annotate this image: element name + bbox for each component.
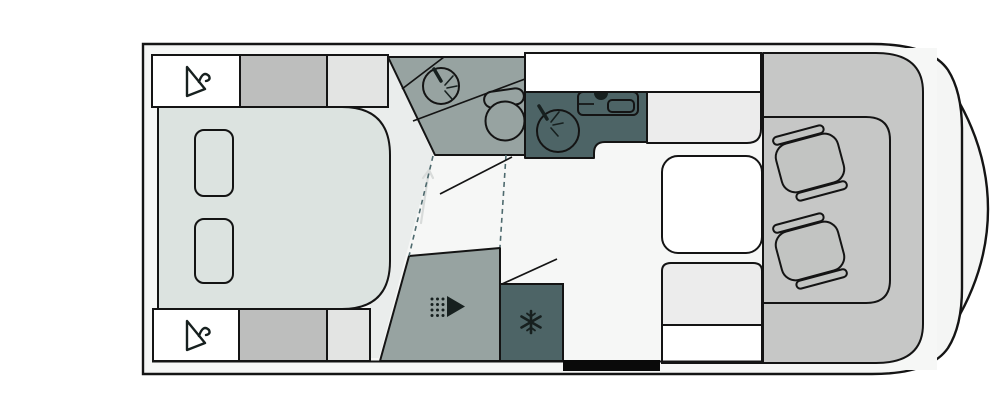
overhead-cabinet-bottom-light <box>327 309 370 361</box>
cab-floor <box>763 53 923 363</box>
floorplan-stage <box>0 0 1000 418</box>
kitchen-bench <box>647 92 761 143</box>
washbasin-with-tap <box>423 68 459 104</box>
overhead-unit <box>525 53 761 92</box>
pillow <box>195 130 233 196</box>
bed <box>158 107 390 309</box>
overhead-cabinet-top-light <box>327 55 388 107</box>
bedroom <box>152 55 390 361</box>
wardrobe-top <box>152 55 240 107</box>
entry-door-marker <box>563 360 660 371</box>
toilet <box>483 87 525 140</box>
cab <box>763 53 923 363</box>
floorplan-svg <box>0 0 1000 418</box>
overhead-cabinet-top-gray <box>240 55 327 107</box>
wardrobe-bottom <box>153 309 239 361</box>
dinette-cabinet <box>662 325 762 363</box>
dinette-bench <box>662 263 762 325</box>
pillow <box>195 219 233 283</box>
overhead-cabinet-bottom-gray <box>239 309 327 361</box>
fridge <box>500 284 563 361</box>
kitchen <box>525 53 761 158</box>
dinette-table <box>662 156 762 253</box>
toilet-bowl <box>486 102 525 141</box>
